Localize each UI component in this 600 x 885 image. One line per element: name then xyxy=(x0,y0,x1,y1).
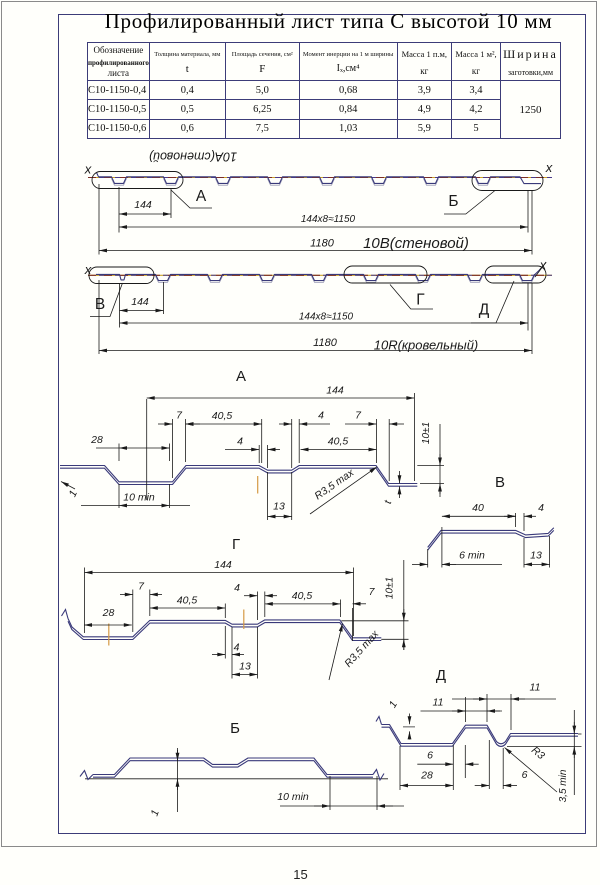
svg-text:4: 4 xyxy=(237,436,243,448)
svg-text:144: 144 xyxy=(326,385,344,397)
svg-text:40: 40 xyxy=(472,502,484,514)
svg-text:x: x xyxy=(84,162,92,177)
svg-text:28: 28 xyxy=(102,607,115,619)
svg-text:4: 4 xyxy=(318,410,324,422)
svg-text:40,5: 40,5 xyxy=(328,436,349,448)
svg-text:144: 144 xyxy=(131,296,149,308)
svg-text:В: В xyxy=(495,474,505,491)
svg-text:4: 4 xyxy=(538,502,544,514)
svg-text:13: 13 xyxy=(530,550,542,562)
svg-text:40,5: 40,5 xyxy=(292,590,313,602)
svg-text:Б: Б xyxy=(230,720,240,737)
svg-text:11: 11 xyxy=(433,697,444,709)
svg-text:10±1: 10±1 xyxy=(421,422,432,444)
svg-text:1: 1 xyxy=(149,808,162,818)
svg-text:R3: R3 xyxy=(529,744,547,762)
svg-text:10В(стеновой): 10В(стеновой) xyxy=(363,235,469,252)
svg-text:13: 13 xyxy=(239,661,251,673)
svg-text:7: 7 xyxy=(369,586,376,598)
svg-text:40,5: 40,5 xyxy=(212,410,233,422)
svg-text:40,5: 40,5 xyxy=(177,595,198,607)
svg-text:1: 1 xyxy=(67,489,80,499)
svg-text:144x8≈1150: 144x8≈1150 xyxy=(301,214,356,225)
svg-text:7: 7 xyxy=(176,410,183,422)
svg-text:6: 6 xyxy=(522,769,528,781)
svg-text:144: 144 xyxy=(134,199,152,211)
svg-text:6: 6 xyxy=(427,750,433,762)
svg-text:3,5 min: 3,5 min xyxy=(558,769,569,802)
svg-text:В: В xyxy=(95,296,105,313)
svg-text:28: 28 xyxy=(420,770,433,782)
svg-text:7: 7 xyxy=(355,410,362,422)
svg-text:4: 4 xyxy=(234,582,240,594)
svg-text:11: 11 xyxy=(530,682,541,694)
svg-text:10 min: 10 min xyxy=(277,791,309,803)
svg-text:10R(кровельный): 10R(кровельный) xyxy=(374,338,479,353)
svg-text:13: 13 xyxy=(273,501,285,513)
svg-text:6 min: 6 min xyxy=(459,550,485,562)
svg-text:1: 1 xyxy=(387,699,400,710)
svg-text:Д: Д xyxy=(436,667,446,684)
svg-text:Г: Г xyxy=(232,536,240,553)
svg-text:28: 28 xyxy=(90,434,103,446)
svg-text:t: t xyxy=(382,498,395,505)
svg-text:1180: 1180 xyxy=(313,337,338,349)
svg-text:144x8≈1150: 144x8≈1150 xyxy=(299,312,354,323)
svg-text:Б: Б xyxy=(448,193,458,210)
svg-text:10А(стеновой): 10А(стеновой) xyxy=(149,150,237,164)
svg-text:144: 144 xyxy=(214,559,232,571)
svg-text:7: 7 xyxy=(138,581,145,593)
svg-text:Д: Д xyxy=(479,302,490,319)
svg-text:А: А xyxy=(236,368,246,385)
svg-text:А: А xyxy=(196,188,207,205)
svg-text:4: 4 xyxy=(234,642,240,654)
svg-text:1180: 1180 xyxy=(310,238,335,250)
svg-text:10±1: 10±1 xyxy=(385,577,396,599)
svg-text:x: x xyxy=(84,262,92,277)
svg-text:10 min: 10 min xyxy=(123,492,155,504)
svg-text:Г: Г xyxy=(416,292,425,309)
svg-text:x: x xyxy=(545,160,553,175)
